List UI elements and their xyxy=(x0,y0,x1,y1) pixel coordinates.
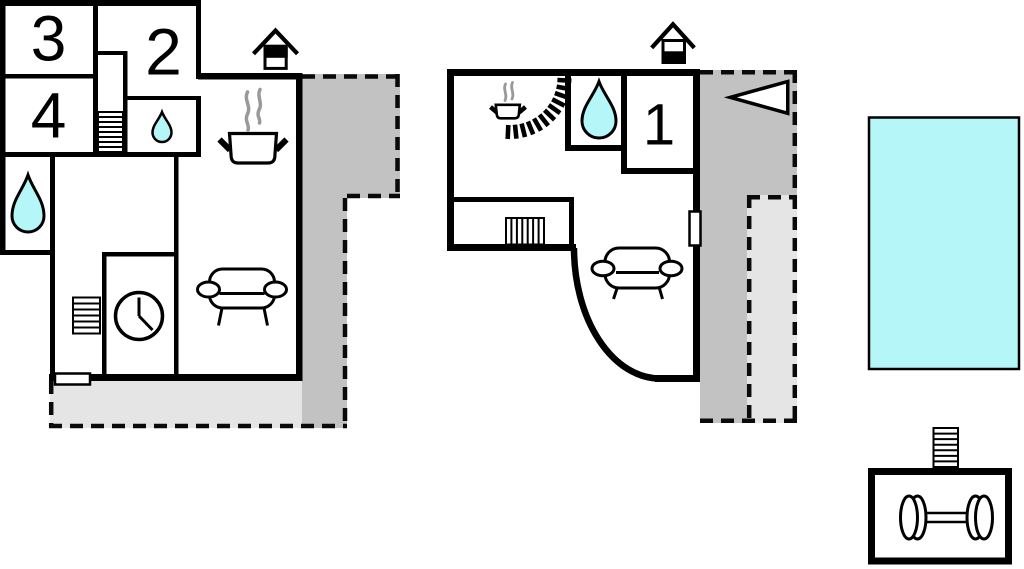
svg-text:4: 4 xyxy=(31,80,67,152)
svg-text:1: 1 xyxy=(643,93,675,158)
svg-text:3: 3 xyxy=(31,3,67,75)
svg-text:2: 2 xyxy=(145,15,182,89)
